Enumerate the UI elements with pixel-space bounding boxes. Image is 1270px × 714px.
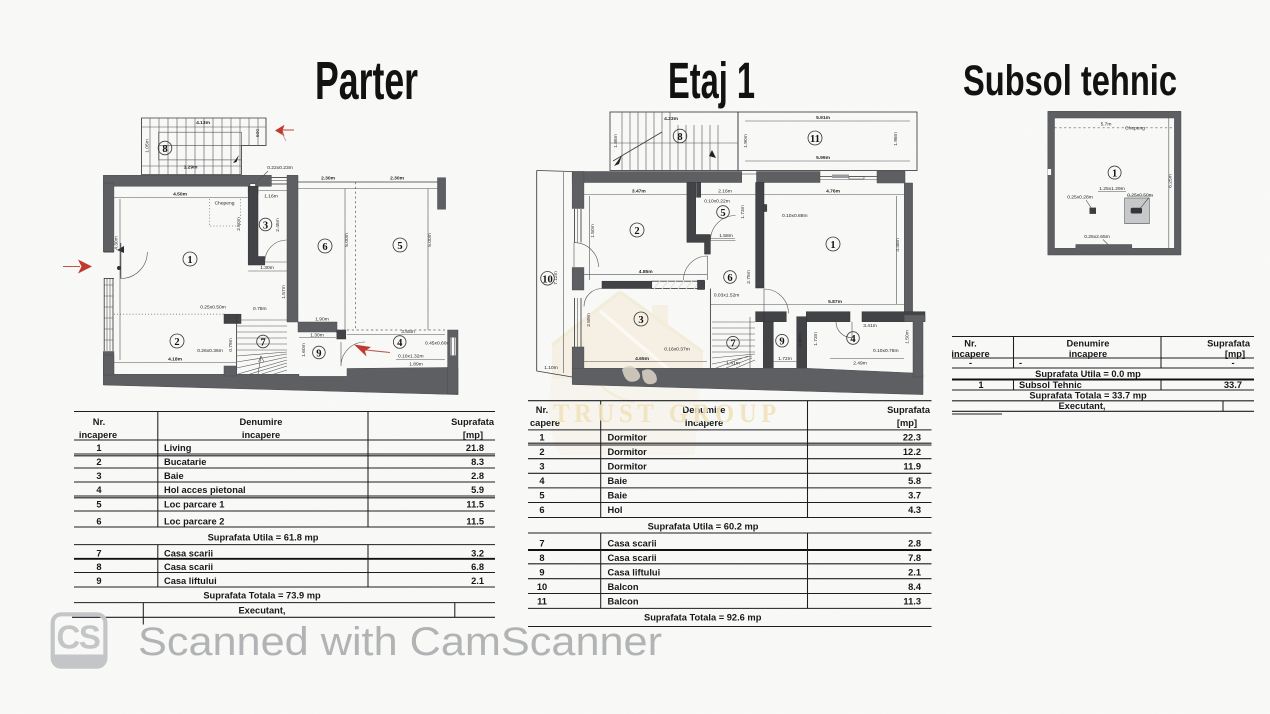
svg-text:3.55m: 3.55m [401, 329, 415, 335]
svg-text:incapere: incapere [242, 430, 280, 440]
svg-text:Executant,: Executant, [1058, 401, 1105, 411]
svg-text:4.30m: 4.30m [114, 236, 120, 250]
svg-text:0.90m: 0.90m [798, 333, 804, 347]
svg-text:9: 9 [316, 349, 321, 360]
svg-text:2.59m: 2.59m [586, 313, 592, 327]
svg-text:Chepeng: Chepeng [1125, 126, 1145, 132]
svg-text:Casa scarii: Casa scarii [608, 539, 657, 549]
svg-text:0.10x0.88m: 0.10x0.88m [782, 213, 808, 219]
svg-text:Parter: Parter [315, 51, 418, 111]
svg-text:Suprafata Utila = 60.2 mp: Suprafata Utila = 60.2 mp [648, 522, 759, 532]
svg-text:5: 5 [96, 500, 101, 510]
svg-text:Suprafata: Suprafata [451, 417, 495, 427]
svg-text:1.73m: 1.73m [813, 332, 819, 346]
svg-text:1.29m: 1.29m [184, 165, 199, 171]
svg-text:0.78m: 0.78m [253, 306, 267, 312]
svg-text:10: 10 [542, 274, 553, 285]
svg-text:0.10x1.32m: 0.10x1.32m [398, 354, 424, 360]
svg-text:11.9: 11.9 [903, 462, 921, 472]
svg-text:11.5: 11.5 [466, 500, 484, 510]
svg-text:Dormitor: Dormitor [608, 462, 648, 472]
svg-text:11: 11 [810, 134, 820, 145]
svg-text:4.23m: 4.23m [664, 116, 679, 122]
svg-text:6: 6 [727, 273, 732, 284]
svg-text:1.98m: 1.98m [893, 132, 899, 146]
svg-text:1: 1 [187, 255, 192, 266]
svg-text:7.12m: 7.12m [553, 271, 559, 285]
svg-text:4: 4 [850, 334, 856, 345]
svg-text:7.8: 7.8 [908, 553, 921, 563]
svg-text:8: 8 [677, 132, 682, 143]
svg-text:2.45m: 2.45m [275, 218, 281, 232]
svg-text:12.2: 12.2 [903, 447, 921, 457]
svg-text:5.91m: 5.91m [816, 115, 831, 121]
svg-text:Casa liftului: Casa liftului [608, 568, 661, 578]
svg-text:4.85m: 4.85m [639, 269, 654, 275]
svg-text:2: 2 [174, 337, 179, 348]
svg-text:Denumire: Denumire [1067, 339, 1110, 349]
svg-text:Casa scarii: Casa scarii [164, 562, 213, 572]
svg-text:8: 8 [96, 562, 101, 572]
svg-text:4.3: 4.3 [908, 505, 921, 515]
svg-text:1: 1 [1112, 169, 1117, 180]
svg-text:Denumire: Denumire [240, 417, 283, 427]
svg-text:8.3: 8.3 [471, 457, 484, 467]
svg-text:6.8: 6.8 [471, 562, 484, 572]
svg-text:-: - [1231, 358, 1234, 368]
svg-text:incapere: incapere [1069, 349, 1107, 359]
svg-text:CS: CS [57, 619, 100, 656]
svg-text:4.65m: 4.65m [635, 356, 650, 362]
svg-text:9: 9 [539, 568, 544, 578]
svg-text:2.75m: 2.75m [746, 270, 752, 284]
svg-text:Executant,: Executant, [238, 606, 285, 616]
svg-text:21.8: 21.8 [466, 443, 484, 453]
svg-text:600: 600 [255, 129, 261, 137]
svg-text:1.85m: 1.85m [613, 134, 619, 148]
svg-text:0.26x0.36m: 0.26x0.36m [197, 348, 223, 354]
svg-text:9: 9 [779, 337, 784, 348]
svg-text:Loc parcare 2: Loc parcare 2 [164, 517, 224, 527]
svg-text:Suprafata Totala = 73.9 mp: Suprafata Totala = 73.9 mp [203, 591, 321, 601]
svg-text:1.16m: 1.16m [264, 194, 278, 200]
svg-text:Living: Living [164, 443, 192, 453]
svg-text:2.8: 2.8 [908, 539, 921, 549]
svg-text:2.16m: 2.16m [718, 189, 732, 195]
svg-text:1.10m: 1.10m [544, 365, 558, 371]
svg-text:1: 1 [539, 433, 544, 443]
svg-text:11: 11 [537, 597, 547, 607]
svg-text:Subsol Tehnic: Subsol Tehnic [1019, 380, 1082, 390]
svg-text:Suprafata Utila = 0.0 mp: Suprafata Utila = 0.0 mp [1035, 369, 1141, 379]
svg-text:2.50m: 2.50m [236, 217, 242, 231]
svg-text:1: 1 [830, 240, 835, 251]
svg-text:6: 6 [539, 505, 544, 515]
svg-text:8: 8 [539, 553, 544, 563]
svg-text:5: 5 [397, 241, 402, 252]
svg-text:2.8: 2.8 [471, 471, 484, 481]
svg-text:-: - [969, 358, 972, 368]
svg-text:3.7: 3.7 [908, 491, 921, 501]
svg-text:Baie: Baie [608, 476, 628, 486]
svg-text:3: 3 [263, 221, 268, 232]
svg-text:Hol acces pietonal: Hol acces pietonal [164, 485, 246, 495]
svg-text:Suprafata: Suprafata [887, 405, 931, 415]
svg-text:1.90m: 1.90m [743, 134, 749, 148]
svg-text:1.50m: 1.50m [590, 224, 596, 238]
svg-text:1.50m: 1.50m [905, 330, 911, 344]
svg-text:7: 7 [730, 339, 735, 350]
svg-text:Subsol tehnic: Subsol tehnic [963, 57, 1177, 105]
svg-text:Nr.: Nr. [536, 405, 548, 415]
svg-text:1.05m: 1.05m [145, 139, 151, 153]
svg-text:Etaj 1: Etaj 1 [668, 52, 755, 109]
svg-text:[mp]: [mp] [897, 418, 917, 428]
svg-text:Baie: Baie [164, 471, 184, 481]
svg-text:Casa liftului: Casa liftului [164, 576, 217, 586]
svg-text:[mp]: [mp] [463, 430, 483, 440]
svg-text:Scanned with CamScanner: Scanned with CamScanner [138, 620, 662, 664]
svg-text:4.50m: 4.50m [173, 192, 188, 198]
svg-text:0.16x0.37m: 0.16x0.37m [664, 347, 690, 353]
svg-text:0.03x1.52m: 0.03x1.52m [714, 293, 740, 299]
svg-text:1.30m: 1.30m [310, 333, 324, 339]
svg-text:3: 3 [96, 471, 101, 481]
svg-text:4.76m: 4.76m [826, 189, 841, 195]
svg-text:5.00m: 5.00m [344, 233, 350, 247]
svg-text:Hol: Hol [608, 505, 623, 515]
svg-text:10: 10 [537, 582, 547, 592]
svg-text:6.25m: 6.25m [1168, 174, 1174, 188]
svg-text:2.1: 2.1 [471, 576, 484, 586]
svg-text:7: 7 [96, 549, 101, 559]
svg-text:Chepeng: Chepeng [215, 201, 235, 207]
svg-text:2.1: 2.1 [908, 568, 921, 578]
svg-text:33.7: 33.7 [1224, 380, 1242, 390]
svg-text:Suprafata Utila = 61.8 mp: Suprafata Utila = 61.8 mp [208, 533, 319, 543]
svg-text:3.47m: 3.47m [632, 189, 647, 195]
svg-text:8: 8 [162, 144, 167, 155]
svg-text:4: 4 [539, 476, 545, 486]
svg-text:1.72m: 1.72m [778, 356, 792, 362]
svg-text:5: 5 [720, 208, 725, 219]
svg-text:0.45x0.60m: 0.45x0.60m [425, 341, 451, 347]
svg-text:5.8: 5.8 [908, 476, 921, 486]
svg-text:Dormitor: Dormitor [608, 433, 648, 443]
svg-text:5.9: 5.9 [471, 485, 484, 495]
svg-text:1.73m: 1.73m [740, 205, 746, 219]
svg-text:9: 9 [96, 576, 101, 586]
svg-text:4.48m: 4.48m [895, 238, 901, 252]
svg-text:0.79m: 0.79m [228, 338, 234, 352]
svg-text:2.30m: 2.30m [321, 176, 336, 182]
svg-text:5.87m: 5.87m [828, 299, 843, 305]
svg-text:1.57m: 1.57m [281, 285, 287, 299]
svg-text:5.99m: 5.99m [816, 155, 831, 161]
svg-text:Casa scarii: Casa scarii [608, 553, 657, 563]
svg-text:Loc parcare 1: Loc parcare 1 [164, 500, 224, 510]
svg-text:0.10x0.22m: 0.10x0.22m [704, 199, 730, 205]
svg-text:1.89m: 1.89m [409, 362, 423, 368]
svg-text:2: 2 [634, 226, 639, 237]
svg-text:Suprafata Totala = 33.7 mp: Suprafata Totala = 33.7 mp [1029, 391, 1147, 401]
svg-text:Bucatarie: Bucatarie [164, 457, 206, 467]
svg-text:1: 1 [96, 443, 101, 453]
svg-text:1.25x1.29m: 1.25x1.29m [1099, 186, 1125, 192]
svg-text:2: 2 [539, 447, 544, 457]
svg-text:Baie: Baie [608, 491, 628, 501]
svg-text:Nr.: Nr. [964, 339, 976, 349]
svg-text:7: 7 [260, 338, 265, 349]
svg-text:2.49m: 2.49m [853, 361, 867, 367]
svg-text:11.5: 11.5 [466, 517, 484, 527]
svg-text:7: 7 [539, 539, 544, 549]
svg-text:3.41m: 3.41m [863, 323, 877, 329]
svg-text:4: 4 [96, 485, 102, 495]
svg-text:0.25x0.28m: 0.25x0.28m [1067, 195, 1093, 201]
svg-text:5.7m: 5.7m [1101, 122, 1112, 128]
svg-text:TRUST GROUP: TRUST GROUP [553, 399, 781, 428]
svg-text:1: 1 [978, 380, 983, 390]
svg-text:4.13m: 4.13m [196, 120, 211, 126]
svg-text:1.58m: 1.58m [719, 233, 733, 239]
svg-text:0.10x0.78m: 0.10x0.78m [873, 348, 899, 354]
svg-text:[mp]: [mp] [1225, 349, 1245, 359]
svg-text:2: 2 [96, 457, 101, 467]
svg-text:6: 6 [322, 242, 327, 253]
svg-text:Casa scarii: Casa scarii [164, 549, 213, 559]
svg-text:11.3: 11.3 [903, 597, 921, 607]
svg-text:5.00m: 5.00m [427, 233, 433, 247]
svg-text:Balcon: Balcon [608, 597, 639, 607]
svg-text:Dormitor: Dormitor [608, 447, 648, 457]
svg-text:1.30m: 1.30m [260, 265, 274, 271]
svg-text:-: - [1019, 358, 1022, 368]
svg-text:Nr.: Nr. [93, 417, 105, 427]
svg-text:0.22x0.23m: 0.22x0.23m [267, 165, 293, 171]
svg-text:4: 4 [397, 338, 403, 349]
svg-text:3.2: 3.2 [471, 549, 484, 559]
svg-text:Suprafata: Suprafata [1207, 339, 1251, 349]
svg-text:Balcon: Balcon [608, 582, 639, 592]
svg-text:3: 3 [638, 315, 643, 326]
svg-text:incapere: incapere [79, 430, 117, 440]
svg-text:4.18m: 4.18m [168, 357, 183, 363]
svg-text:0.25x0.50m: 0.25x0.50m [200, 305, 226, 311]
svg-text:1.41m: 1.41m [726, 361, 740, 367]
svg-text:5: 5 [539, 491, 544, 501]
svg-text:1.60m: 1.60m [301, 343, 307, 357]
svg-text:3: 3 [539, 462, 544, 472]
svg-text:8.4: 8.4 [908, 582, 922, 592]
svg-text:0.25x2.65m: 0.25x2.65m [1084, 234, 1110, 240]
svg-text:2.30m: 2.30m [390, 176, 405, 182]
svg-text:6: 6 [96, 517, 101, 527]
svg-text:22.3: 22.3 [903, 433, 921, 443]
svg-text:1.90m: 1.90m [315, 317, 329, 323]
